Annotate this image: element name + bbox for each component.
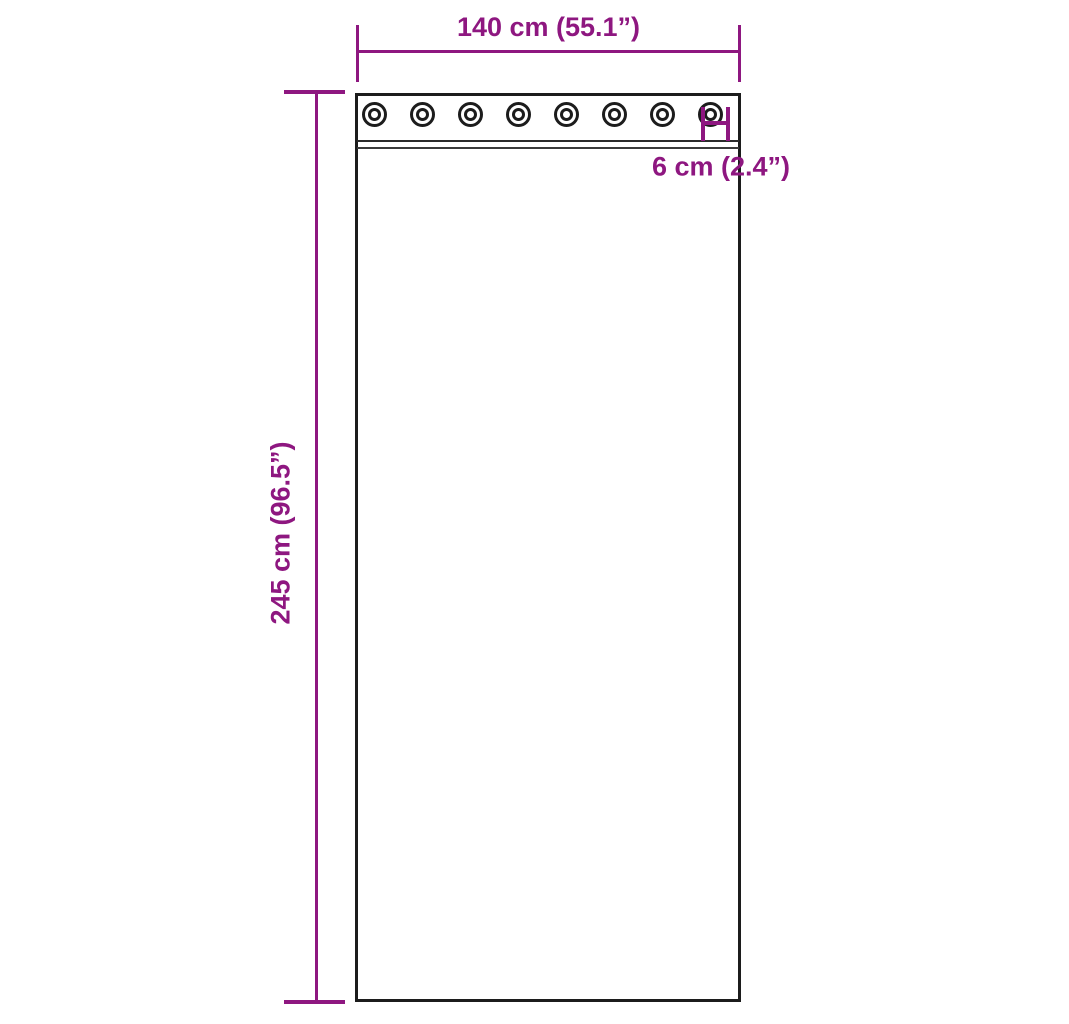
height-dimension-tick-top: [284, 90, 345, 94]
grommet-icon: [506, 102, 531, 127]
width-dimension-line: [357, 50, 740, 53]
grommet-dimension-label: 6 cm (2.4”): [652, 152, 790, 183]
curtain-dimension-diagram: 140 cm (55.1”) 245 cm (96.5”) 6 cm (2.4”…: [0, 0, 1069, 1024]
grommet-icon: [650, 102, 675, 127]
grommet-hole: [608, 108, 621, 121]
grommet-hole: [656, 108, 669, 121]
grommet-hole: [464, 108, 477, 121]
width-dimension-label: 140 cm (55.1”): [357, 12, 740, 43]
grommet-icon: [410, 102, 435, 127]
grommet-hole: [704, 108, 717, 121]
height-dimension-tick-bottom: [284, 1000, 345, 1004]
grommet-icon: [554, 102, 579, 127]
height-dimension-line: [315, 92, 318, 1003]
width-dimension-tick-left: [356, 25, 359, 82]
height-dimension-label: 245 cm (96.5”): [266, 441, 297, 624]
grommet-hole: [368, 108, 381, 121]
grommet-dimension-line: [701, 121, 730, 125]
grommet-hole: [512, 108, 525, 121]
grommet-hole: [416, 108, 429, 121]
width-dimension-tick-right: [738, 25, 741, 82]
grommet-icon: [362, 102, 387, 127]
header-stitch-line-bottom: [357, 147, 739, 149]
header-stitch-line-top: [357, 140, 739, 142]
grommet-hole: [560, 108, 573, 121]
curtain-panel: [355, 93, 741, 1002]
grommet-icon: [602, 102, 627, 127]
grommet-icon: [458, 102, 483, 127]
